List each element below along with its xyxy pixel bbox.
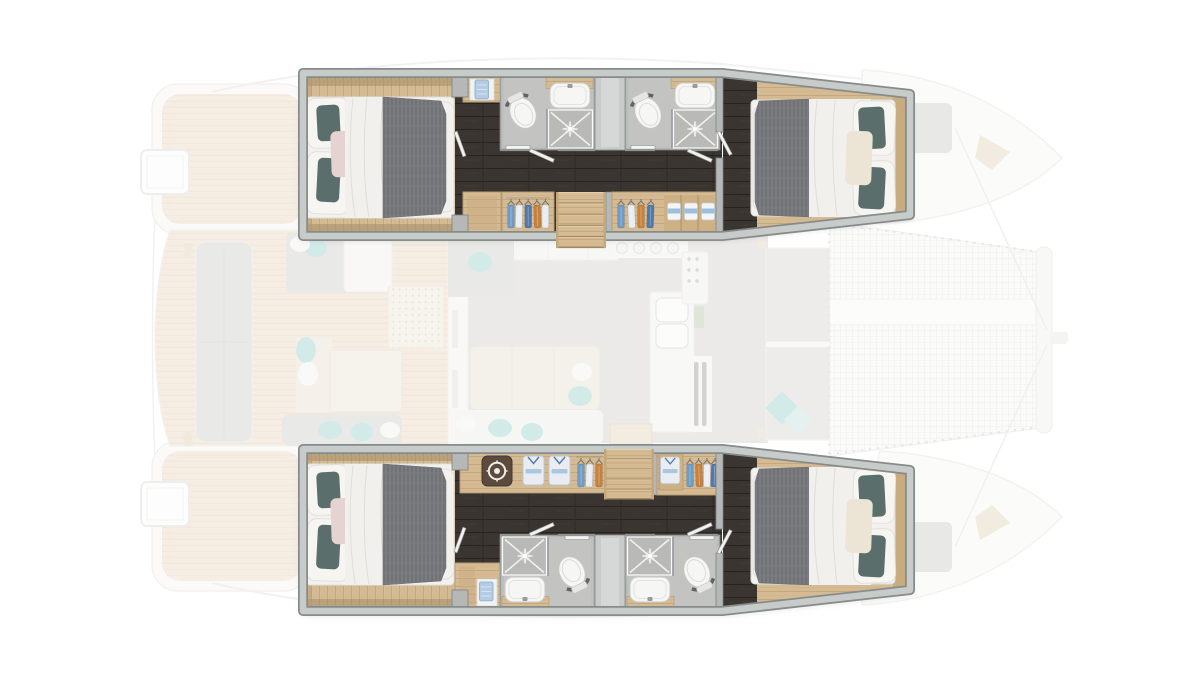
galley-sink <box>656 324 688 348</box>
towel-shelf-icon <box>668 203 681 220</box>
salon-sofa <box>455 346 603 444</box>
port-aft-wardrobe <box>502 192 554 234</box>
perforated-panel <box>388 286 444 348</box>
bowsprit <box>1050 332 1068 344</box>
trampoline-walkway <box>830 299 1040 325</box>
technical-divider <box>595 535 625 611</box>
folded-shirt-icon <box>523 456 544 485</box>
port-aft-bathroom <box>501 75 595 150</box>
starboard-forward-bed <box>751 467 896 585</box>
aft-cockpit <box>155 230 448 446</box>
port-aft-cabin <box>303 75 455 235</box>
bow-crossbeam <box>1036 247 1052 433</box>
folded-shirt-icon <box>661 457 680 484</box>
port-forward-cabin <box>716 76 908 234</box>
port-staircase <box>556 192 606 248</box>
starboard-aft-cabin <box>303 450 455 610</box>
towel-icon <box>475 80 489 99</box>
stove <box>682 252 708 304</box>
port-forward-wardrobe <box>612 192 718 234</box>
port-empty-niche <box>463 192 501 234</box>
technical-divider <box>595 74 625 150</box>
starboard-staircase <box>604 449 654 499</box>
catamaran-floor-plan <box>0 0 1200 675</box>
floor-plan-image <box>0 0 1200 675</box>
port-hull-interior <box>303 73 910 248</box>
salon <box>448 233 768 446</box>
towel-icon <box>480 582 494 601</box>
port-towel-niche <box>463 77 501 102</box>
port-forward-bathroom <box>626 75 720 150</box>
starboard-safe-wardrobe <box>460 449 605 493</box>
starboard-aft-bed <box>306 464 454 585</box>
starboard-forward-wardrobe <box>657 449 718 495</box>
safe-icon <box>482 456 512 486</box>
cockpit-table <box>330 350 402 412</box>
folded-shirt-icon <box>549 456 570 485</box>
stair-landing <box>610 424 652 446</box>
port-forward-bed <box>751 99 896 217</box>
starboard-forward-cabin <box>716 451 908 611</box>
starboard-forward-bathroom <box>626 536 720 611</box>
starboard-aft-bathroom <box>501 536 595 611</box>
starboard-hull-interior <box>303 449 910 611</box>
port-aft-bed <box>306 97 454 218</box>
